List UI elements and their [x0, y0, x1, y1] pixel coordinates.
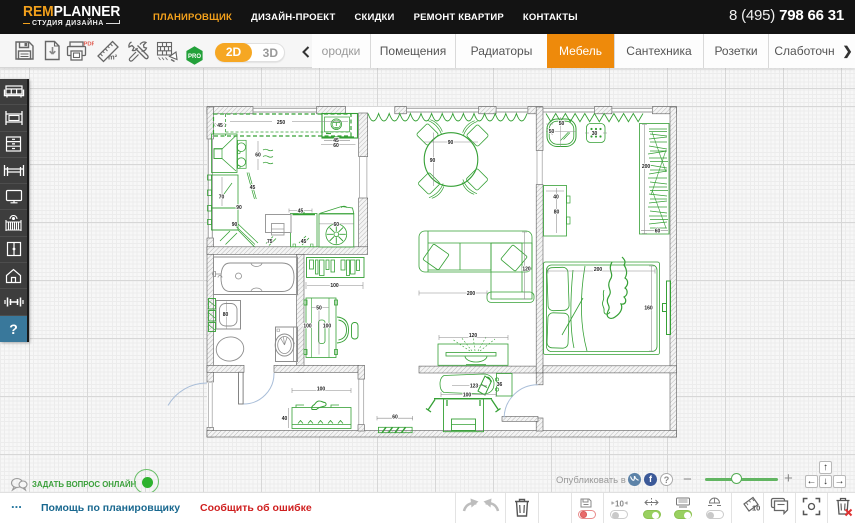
svg-text:80: 80 [554, 210, 560, 216]
svg-text:100: 100 [303, 324, 312, 330]
svg-text:120: 120 [522, 267, 531, 273]
svg-text:90: 90 [236, 205, 242, 211]
svg-text:250: 250 [277, 120, 286, 126]
svg-text:90: 90 [232, 222, 238, 228]
svg-text:100: 100 [317, 387, 326, 393]
svg-text:m²: m² [108, 53, 118, 62]
svg-text:60: 60 [255, 153, 261, 159]
svg-text:75: 75 [267, 239, 273, 245]
svg-text:100: 100 [330, 283, 339, 289]
svg-text:70: 70 [219, 195, 225, 201]
svg-text:100: 100 [463, 393, 472, 399]
svg-text:60: 60 [392, 415, 398, 421]
svg-text:90: 90 [448, 140, 454, 146]
svg-text:45: 45 [250, 185, 256, 191]
svg-text:200: 200 [594, 267, 603, 273]
svg-text:45: 45 [298, 209, 304, 215]
svg-text:50: 50 [559, 121, 565, 127]
svg-text:40: 40 [553, 195, 559, 201]
svg-text:40: 40 [282, 416, 288, 422]
svg-text:PRO: PRO [188, 54, 201, 60]
svg-text:50: 50 [316, 306, 322, 312]
svg-text:80: 80 [223, 312, 229, 318]
svg-text:60: 60 [334, 222, 340, 228]
svg-text:60: 60 [333, 143, 339, 149]
svg-text:60: 60 [655, 229, 661, 235]
svg-text:PDF: PDF [84, 42, 95, 48]
svg-text:45: 45 [217, 123, 223, 129]
svg-text:123: 123 [470, 384, 479, 390]
svg-text:200: 200 [467, 291, 476, 297]
svg-text:36: 36 [497, 382, 503, 388]
svg-text:10: 10 [615, 500, 624, 509]
svg-text:10: 10 [752, 504, 760, 513]
svg-text:45: 45 [301, 239, 307, 245]
svg-text:90: 90 [430, 158, 436, 164]
svg-text:160: 160 [644, 306, 653, 312]
svg-text:120: 120 [469, 333, 478, 339]
svg-text:50: 50 [549, 129, 555, 135]
svg-text:30: 30 [592, 131, 598, 137]
svg-text:100: 100 [323, 324, 332, 330]
svg-text:200: 200 [642, 164, 651, 170]
